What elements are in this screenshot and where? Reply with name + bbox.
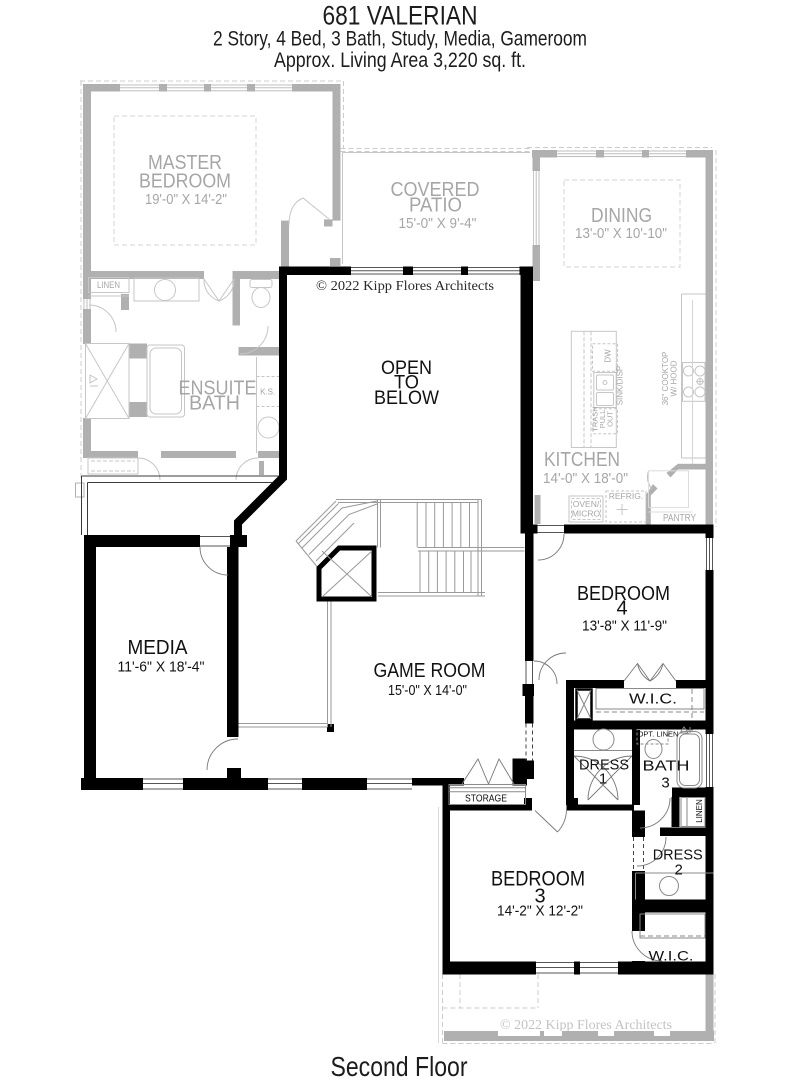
svg-text:BATH: BATH: [643, 758, 690, 775]
svg-text:Second Floor: Second Floor: [331, 1051, 468, 1082]
svg-text:3: 3: [661, 775, 669, 792]
svg-text:15'-0" X 9'-4": 15'-0" X 9'-4": [399, 216, 477, 232]
svg-text:OPT. LINEN: OPT. LINEN: [638, 730, 679, 739]
svg-text:© 2022 Kipp Flores Architects: © 2022 Kipp Flores Architects: [316, 278, 494, 293]
svg-text:BELOW: BELOW: [374, 387, 440, 409]
svg-text:14'-0" X 18'-0": 14'-0" X 18'-0": [543, 471, 628, 487]
svg-text:15'-0" X 14'-0": 15'-0" X 14'-0": [388, 683, 467, 699]
svg-text:SINK/DISP: SINK/DISP: [616, 366, 625, 406]
svg-text:DINING: DINING: [591, 205, 652, 227]
svg-text:OUT: OUT: [606, 411, 615, 427]
svg-text:REFRIG.: REFRIG.: [609, 491, 643, 501]
svg-text:W.I.C.: W.I.C.: [629, 691, 677, 708]
svg-text:13'-8" X 11'-9": 13'-8" X 11'-9": [582, 619, 667, 635]
svg-text:© 2022 Kipp Flores Architects: © 2022 Kipp Flores Architects: [500, 1017, 672, 1032]
svg-text:W/ HOOD: W/ HOOD: [670, 360, 679, 396]
svg-text:DW: DW: [604, 349, 613, 363]
svg-text:MEDIA: MEDIA: [128, 637, 189, 659]
svg-text:14'-2" X 12'-2": 14'-2" X 12'-2": [497, 904, 583, 920]
svg-text:OVEN/: OVEN/: [573, 499, 600, 509]
svg-text:BEDROOM: BEDROOM: [139, 171, 231, 193]
svg-text:GAME ROOM: GAME ROOM: [374, 660, 486, 682]
svg-text:13'-0" X 10'-10": 13'-0" X 10'-10": [575, 226, 667, 242]
svg-text:19'-0" X 14'-2": 19'-0" X 14'-2": [145, 192, 227, 208]
svg-text:K.S.: K.S.: [260, 388, 275, 397]
svg-text:681 VALERIAN: 681 VALERIAN: [323, 1, 478, 31]
svg-text:BATH: BATH: [189, 393, 240, 415]
svg-text:Approx. Living Area 3,220 sq.: Approx. Living Area 3,220 sq. ft.: [274, 49, 526, 72]
svg-text:MICRO: MICRO: [572, 509, 601, 519]
svg-text:PATIO: PATIO: [409, 195, 462, 217]
svg-text:LINEN: LINEN: [695, 799, 704, 823]
svg-text:W.I.C.: W.I.C.: [649, 948, 694, 964]
svg-text:2: 2: [675, 862, 683, 879]
svg-text:LINEN: LINEN: [97, 280, 120, 290]
svg-text:KITCHEN: KITCHEN: [544, 449, 620, 471]
svg-text:PANTRY: PANTRY: [663, 513, 696, 524]
svg-text:2 Story, 4 Bed, 3 Bath, Study,: 2 Story, 4 Bed, 3 Bath, Study, Media, Ga…: [213, 28, 587, 51]
svg-text:4: 4: [616, 598, 627, 620]
svg-text:1: 1: [599, 771, 607, 788]
svg-text:11'-6" X 18'-4": 11'-6" X 18'-4": [118, 660, 205, 676]
svg-text:STORAGE: STORAGE: [465, 794, 507, 805]
